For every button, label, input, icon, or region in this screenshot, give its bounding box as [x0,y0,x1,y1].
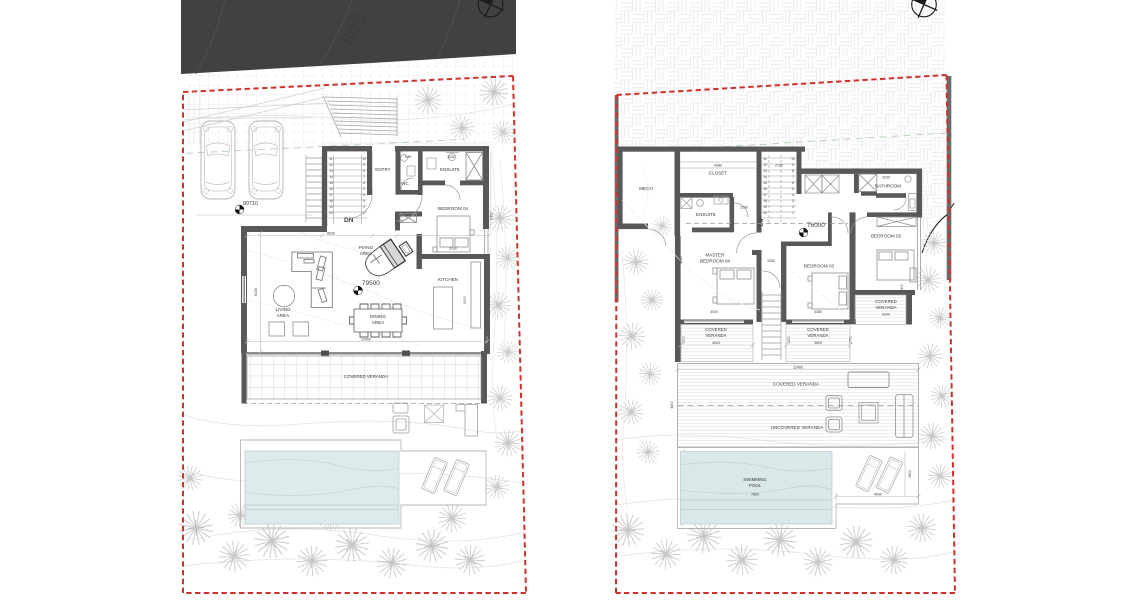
svg-text:7: 7 [363,175,365,179]
svg-text:19: 19 [763,205,767,209]
svg-text:3400: 3400 [900,284,904,292]
svg-text:11: 11 [763,157,767,161]
svg-text:BATHROOM: BATHROOM [875,184,901,189]
svg-text:12400: 12400 [361,338,371,342]
svg-text:DN: DN [759,218,765,226]
svg-text:1050: 1050 [767,259,775,263]
svg-text:14: 14 [763,175,767,179]
svg-text:COVERED VERANDA: COVERED VERANDA [344,374,388,379]
svg-text:PIANO: PIANO [359,245,374,250]
svg-text:7: 7 [792,175,794,179]
svg-text:1: 1 [792,211,794,215]
svg-text:15: 15 [763,181,767,185]
svg-text:BEDROOM 03: BEDROOM 03 [804,264,835,269]
svg-text:10: 10 [791,157,795,161]
svg-text:8630: 8630 [327,232,335,236]
svg-text:13: 13 [329,169,333,173]
svg-text:KITCHEN: KITCHEN [438,277,458,282]
svg-text:8: 8 [363,169,365,173]
svg-text:4080: 4080 [714,164,722,168]
svg-text:79500: 79500 [362,280,380,287]
svg-text:4000: 4000 [712,341,720,345]
svg-text:5: 5 [792,187,794,191]
svg-text:6: 6 [363,181,365,185]
svg-text:COVERED: COVERED [875,299,897,304]
svg-text:AREA: AREA [277,313,290,318]
svg-text:14: 14 [329,175,333,179]
svg-text:9: 9 [792,163,794,167]
svg-text:COVERED VERANDA: COVERED VERANDA [773,382,820,387]
svg-text:3380: 3380 [814,310,822,314]
svg-text:SWIMMING: SWIMMING [743,477,767,482]
svg-text:76000: 76000 [807,222,825,229]
svg-text:12400: 12400 [793,366,803,370]
svg-text:MASTER: MASTER [705,253,725,258]
svg-text:BEDROOM 04: BEDROOM 04 [438,206,469,211]
svg-text:20: 20 [329,211,333,215]
svg-text:6: 6 [792,181,794,185]
svg-text:4680: 4680 [679,256,683,264]
svg-text:VERANDA: VERANDA [875,305,896,310]
svg-text:DINING: DINING [370,314,387,319]
svg-text:3: 3 [363,199,365,203]
svg-text:3600: 3600 [814,341,822,345]
svg-text:5: 5 [363,187,365,191]
svg-text:ENTRY: ENTRY [375,167,391,172]
svg-text:WC: WC [401,181,409,186]
svg-text:3230: 3230 [449,247,457,251]
svg-text:8: 8 [792,169,794,173]
svg-text:16: 16 [329,187,333,191]
svg-text:19: 19 [329,205,333,209]
svg-text:4000: 4000 [710,310,718,314]
svg-text:3200: 3200 [882,313,890,317]
svg-text:ENSUITE: ENSUITE [696,212,716,217]
svg-text:AREA: AREA [372,320,385,325]
svg-text:16: 16 [763,187,767,191]
svg-text:UNCOVERED VERANDA: UNCOVERED VERANDA [771,425,825,430]
svg-text:4400: 4400 [670,401,674,409]
svg-text:17: 17 [763,193,767,197]
svg-text:2750: 2750 [490,212,494,220]
svg-text:4000: 4000 [874,493,882,497]
svg-text:4: 4 [792,193,794,197]
svg-text:1260: 1260 [740,206,748,210]
svg-text:2100: 2100 [775,164,783,168]
svg-text:BEDROOM 02: BEDROOM 02 [871,234,902,239]
svg-text:3: 3 [792,199,794,203]
svg-text:9: 9 [363,163,365,167]
svg-text:AREA: AREA [360,251,373,256]
svg-text:COVERED: COVERED [807,327,829,332]
svg-text:2800: 2800 [908,470,912,478]
svg-text:12: 12 [329,163,333,167]
svg-text:LIVING: LIVING [275,307,290,312]
svg-text:ENSUITE: ENSUITE [440,167,460,172]
svg-text:MECH: MECH [639,186,653,191]
svg-text:18: 18 [763,199,767,203]
svg-text:10: 10 [362,157,366,161]
svg-text:7800: 7800 [751,493,759,497]
svg-text:17: 17 [329,193,333,197]
svg-text:2: 2 [363,205,365,209]
svg-text:VERANDA: VERANDA [705,333,726,338]
svg-text:80710: 80710 [243,201,258,207]
svg-text:3230: 3230 [447,155,455,159]
svg-text:6430: 6430 [254,288,258,296]
svg-text:1 80: 1 80 [405,155,412,159]
svg-text:12: 12 [763,163,767,167]
svg-text:3230: 3230 [882,176,890,180]
svg-text:18: 18 [329,199,333,203]
svg-text:VERANDA: VERANDA [807,333,828,338]
svg-text:13: 13 [763,169,767,173]
svg-text:5000: 5000 [463,296,467,304]
svg-text:4: 4 [363,193,365,197]
svg-text:11: 11 [329,157,333,161]
svg-text:15: 15 [329,181,333,185]
svg-text:CLOSET: CLOSET [709,171,728,176]
svg-text:2: 2 [792,205,794,209]
svg-text:20: 20 [763,211,767,215]
svg-text:BEDROOM 04: BEDROOM 04 [700,259,731,264]
svg-text:POOL: POOL [749,483,762,488]
svg-text:COVERED: COVERED [705,327,727,332]
